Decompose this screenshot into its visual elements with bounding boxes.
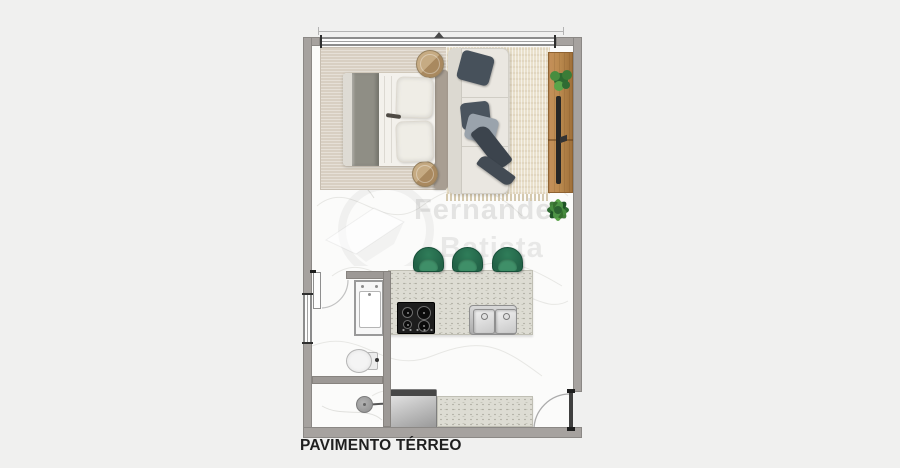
bathroom-door-leaf: [313, 272, 321, 309]
gas-cooktop: [397, 302, 435, 334]
bed-blanket: [352, 73, 379, 166]
stool-seat: [458, 259, 477, 271]
burner: [417, 306, 431, 320]
drain-icon: [481, 313, 488, 320]
double-sink: [469, 305, 517, 335]
bar-stool: [452, 247, 483, 272]
sink-basin: [473, 309, 495, 334]
wall-right: [573, 37, 582, 392]
wall-left-upper: [303, 37, 312, 295]
duvet-fold: [384, 76, 385, 163]
bathroom-vanity: [354, 280, 384, 336]
shower-partition-wall: [312, 376, 383, 384]
bathroom-window: [303, 295, 312, 343]
faucet-dot: [368, 293, 371, 296]
vanity-fixture-dot: [361, 285, 364, 288]
nightstand: [416, 50, 444, 78]
sofa-seat-divider: [462, 97, 508, 98]
burner: [402, 307, 413, 318]
stool-seat: [498, 259, 517, 271]
flush-button: [375, 358, 379, 362]
service-counter: [437, 396, 533, 427]
entry-door-leaf: [569, 393, 573, 429]
bathroom-wall-right: [383, 271, 391, 427]
bed-pillow: [395, 120, 433, 162]
door-jamb: [567, 389, 575, 393]
shower-head: [356, 396, 373, 413]
drain-icon: [503, 313, 510, 320]
door-jamb: [310, 270, 316, 273]
dimension-tick-left: [318, 27, 319, 35]
dimension-tick-right: [563, 27, 564, 35]
window-end-tick: [302, 293, 313, 295]
nightstand: [412, 161, 438, 187]
door-jamb: [567, 427, 575, 431]
toilet: [346, 349, 372, 373]
washing-machine: [390, 389, 437, 432]
page-title: PAVIMENTO TÉRREO: [300, 437, 462, 455]
duvet-fold: [391, 76, 392, 163]
panel-plant-icon: [549, 66, 573, 94]
floor-plan-image: Fernandez Batista: [0, 0, 900, 468]
rug-fringe: [446, 194, 550, 201]
bar-stool: [492, 247, 523, 272]
cooktop-knobs: [400, 328, 433, 332]
sink-basin: [495, 309, 517, 334]
window-center-marker: [434, 32, 444, 38]
vanity-basin: [359, 291, 381, 328]
bar-stool: [413, 247, 444, 272]
window-end-tick: [320, 35, 322, 48]
bed-pillow: [395, 76, 433, 118]
window-glass-line: [307, 295, 308, 343]
wall-left-lower: [303, 343, 312, 438]
vanity-fixture-dot: [375, 285, 378, 288]
window-end-tick: [554, 35, 556, 48]
top-window: [320, 37, 556, 46]
window-glass-line: [320, 41, 556, 42]
window-end-tick: [302, 342, 313, 344]
stool-seat: [419, 259, 438, 271]
